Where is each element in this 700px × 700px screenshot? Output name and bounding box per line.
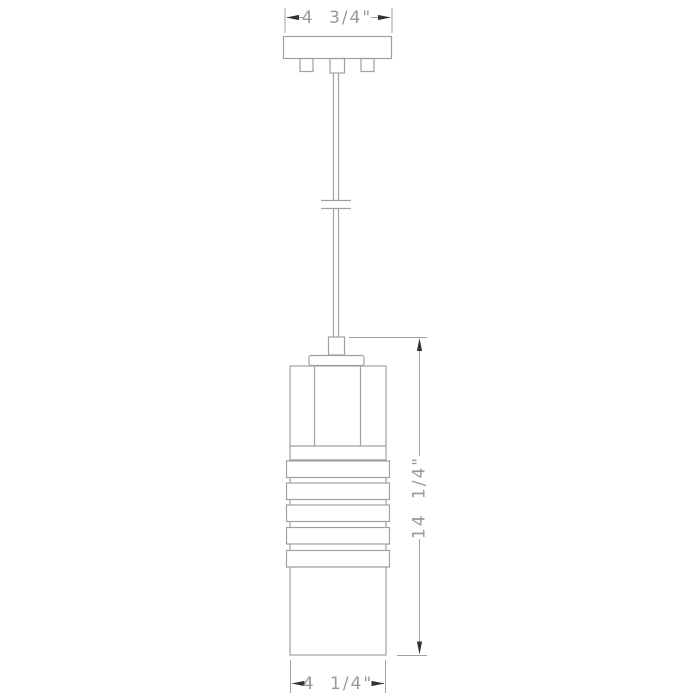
arrowhead-down-icon [417,642,422,655]
canopy-plate [284,37,392,59]
mounting-tab-left [300,59,313,72]
socket-stem [329,337,345,355]
band-1 [287,461,390,478]
fixture-height-label: 14 1/4" [410,456,430,539]
drawing-page: 4 3/4" [0,0,700,700]
mounting-tab-right [361,59,374,72]
cord-grip-top [330,59,345,74]
pendant-fixture [287,337,390,655]
band-3 [287,505,390,522]
band-4 [287,528,390,545]
ribbed-bands [287,461,390,567]
canopy-width-label: 4 3/4" [302,8,372,28]
top-flange [309,356,364,366]
arrowhead-right-icon [378,15,391,20]
pendant-light-diagram: 4 3/4" [0,0,700,700]
arrowhead-right-icon [372,681,385,686]
arrowhead-left-icon [286,15,299,20]
cord [321,73,351,337]
bottom-dimension: 4 1/4" [291,660,386,694]
lower-glass [290,567,386,655]
band-5 [287,551,390,568]
arrowhead-up-icon [417,338,422,351]
shade-width-label: 4 1/4" [303,674,373,694]
ceiling-canopy [284,37,392,74]
top-dimension: 4 3/4" [285,8,392,33]
band-2 [287,483,390,500]
